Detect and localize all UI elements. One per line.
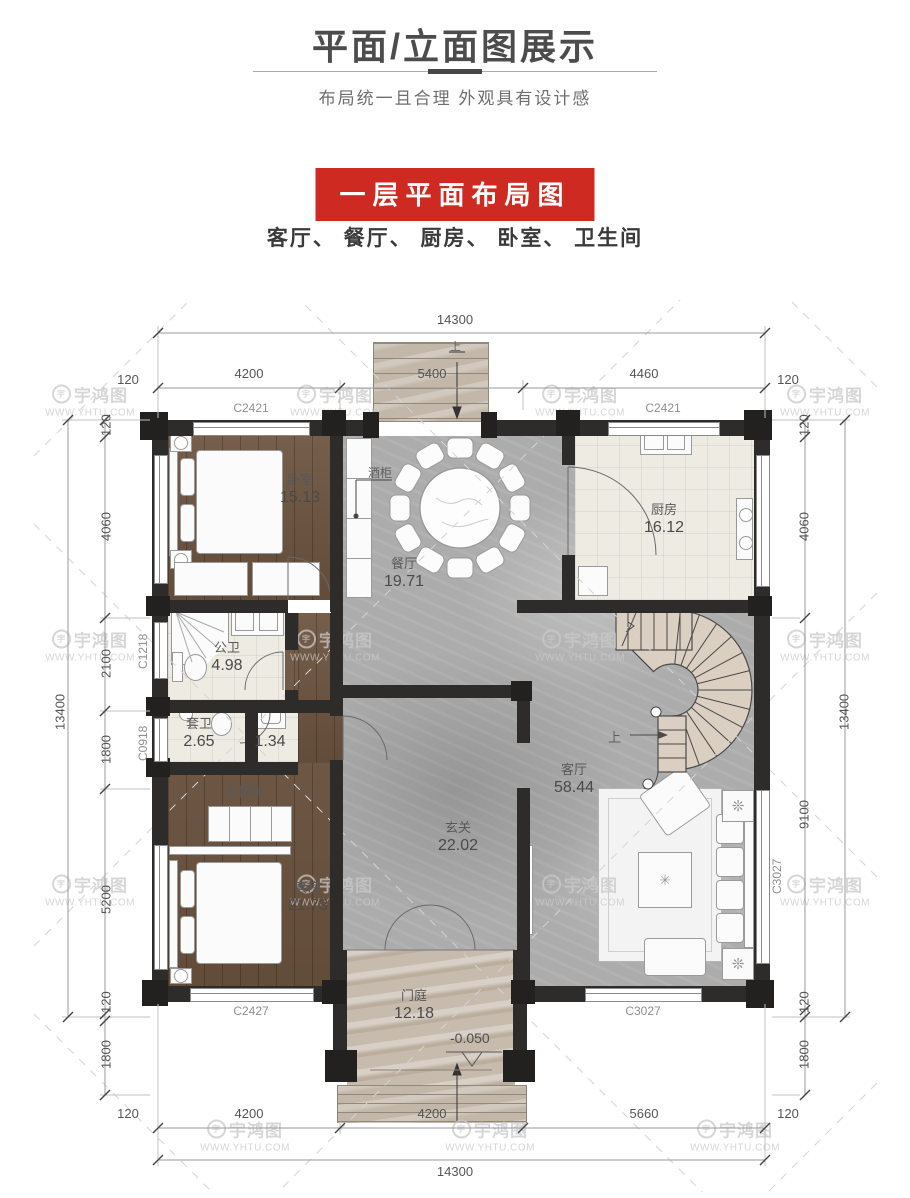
section-banner: 一层平面布局图 (315, 168, 594, 221)
dim-bottom-seg: 4200 (394, 1106, 470, 1121)
dim-left-seg: 5200 (98, 870, 114, 930)
kitchen-cabinet (578, 566, 608, 596)
sofa-cushion (716, 847, 744, 877)
room-label-foyer: 玄关22.02 (430, 820, 486, 856)
interior-wall (517, 600, 754, 613)
dim-top-seg: 5400 (394, 366, 470, 381)
watermark-logo-icon: 宇 (697, 1120, 716, 1139)
window-label: C3027 (770, 840, 784, 912)
column (748, 596, 772, 616)
stairs-up-note: 上 (608, 727, 621, 746)
interior-wall (517, 698, 530, 743)
room-list: 客厅、 餐厅、 厨房、 卧室、 卫生间 (0, 222, 910, 252)
watermark: 宇宇鸿图WWW.YHTU.COM (780, 382, 870, 419)
window (190, 988, 314, 1002)
sink-basin (259, 611, 278, 631)
column (511, 980, 535, 1004)
interior-wall (152, 600, 288, 613)
dim-right-overall: 13400 (836, 682, 852, 742)
watermark-logo-icon: 宇 (52, 630, 71, 649)
plant-icon: ❊ (722, 948, 754, 980)
dim-right-seg: 120 (796, 972, 812, 1032)
dim-right-seg: 120 (796, 395, 812, 455)
column (744, 410, 772, 440)
pillow (180, 504, 195, 542)
divider-accent (428, 69, 482, 74)
column (481, 412, 497, 438)
watermark: 宇宇鸿图WWW.YHTU.COM (200, 1117, 290, 1154)
interior-wall (168, 700, 343, 713)
pillow (180, 916, 195, 954)
interior-wall (330, 685, 527, 698)
back-steps (373, 342, 489, 422)
interior-wall (168, 762, 298, 775)
interior-wall (285, 613, 298, 650)
window (193, 422, 310, 436)
dim-left-seg: 4060 (98, 497, 114, 557)
burner-icon (739, 536, 753, 550)
bed-mattress (196, 450, 283, 554)
window-label: C0918 (136, 712, 150, 774)
dim-bottom-end: 120 (768, 1106, 808, 1121)
dim-left-seg: 2100 (98, 634, 114, 694)
toilet-tank (172, 652, 183, 682)
window (154, 845, 168, 970)
dim-left-seg: 1800 (98, 720, 114, 780)
dim-top-overall: 14300 (413, 312, 497, 327)
dim-right-seg: 4060 (796, 497, 812, 557)
level-note: -0.050 (450, 1030, 490, 1046)
watermark: 宇宇鸿图WWW.YHTU.COM (690, 1117, 780, 1154)
dim-top-seg: 4200 (211, 366, 287, 381)
dim-top-seg: 4460 (606, 366, 682, 381)
dim-top-end: 120 (108, 372, 148, 387)
sofa-back (744, 812, 754, 948)
dim-bottom-overall: 14300 (413, 1164, 497, 1179)
porch-column (325, 1050, 357, 1082)
dim-right-seg: 1800 (796, 1025, 812, 1085)
interior-wall (562, 436, 575, 465)
room-label-cloakroom: 衣帽间 (212, 784, 276, 800)
bed-mattress (196, 862, 282, 964)
dim-bottom-end: 120 (108, 1106, 148, 1121)
window (756, 455, 770, 587)
window (154, 622, 168, 679)
watermark-logo-icon: 宇 (52, 875, 71, 894)
bed-headboard (169, 860, 178, 968)
column (140, 412, 168, 440)
back-up-note: 上 (450, 338, 461, 354)
coffee-table: ✳ (638, 852, 692, 908)
column (146, 596, 170, 616)
wine-cabinet (346, 438, 372, 598)
bed-headboard (169, 448, 178, 556)
watermark-logo-icon: 宇 (787, 630, 806, 649)
dim-bottom-seg: 4200 (211, 1106, 287, 1121)
dim-left-seg: 120 (98, 395, 114, 455)
room-label-bedroom: 卧室15.13 (272, 472, 328, 508)
cloakroom-shelf (169, 846, 291, 855)
column (142, 980, 168, 1006)
dim-top-end: 120 (768, 372, 808, 387)
window (585, 988, 702, 1002)
plant-icon: ❊ (722, 790, 754, 822)
watermark: 宇宇鸿图WWW.YHTU.COM (535, 382, 625, 419)
room-label-suite-bath: 套卫2.65 (174, 716, 224, 752)
window-label: C2421 (212, 401, 290, 415)
pillow (180, 870, 195, 908)
watermark: 宇宇鸿图WWW.YHTU.COM (45, 872, 135, 909)
porch-column (503, 1050, 535, 1082)
column (746, 980, 774, 1008)
window (154, 455, 168, 584)
sofa-cushion (716, 913, 744, 943)
watermark-logo-icon: 宇 (297, 385, 316, 404)
sofa-two-seat (644, 938, 706, 976)
interior-wall (330, 613, 343, 716)
wardrobe (208, 806, 292, 842)
column (322, 410, 346, 436)
sofa-cushion (716, 880, 744, 910)
window (608, 422, 720, 436)
dim-bottom-seg: 5660 (606, 1106, 682, 1121)
watermark: 宇宇鸿图WWW.YHTU.COM (45, 382, 135, 419)
interior-wall (331, 600, 343, 613)
bedroom-cabinet (252, 562, 320, 596)
watermark-logo-icon: 宇 (787, 875, 806, 894)
room-label-living: 客厅58.44 (546, 762, 602, 798)
dim-left-seg: 1800 (98, 1025, 114, 1085)
room-label-kitchen: 厨房16.12 (636, 502, 692, 538)
window-label: C2427 (212, 1004, 290, 1018)
window-label: C3027 (604, 1004, 682, 1018)
lamp-icon (174, 969, 188, 983)
room-label-public-bath: 公卫4.98 (202, 640, 252, 676)
burner-icon (739, 508, 753, 522)
room-label-porch: 门庭12.18 (386, 988, 442, 1024)
dim-left-seg: 120 (98, 972, 114, 1032)
bedroom-bench (174, 562, 248, 596)
window-label: C1218 (136, 620, 150, 682)
watermark: 宇宇鸿图WWW.YHTU.COM (780, 872, 870, 909)
dim-right-seg: 9100 (796, 785, 812, 845)
room-label-suite: 套房21.73 (280, 880, 336, 916)
window-label: C2421 (624, 401, 702, 415)
room-label-small-bath: 1.34 (250, 732, 290, 752)
watermark: 宇宇鸿图WWW.YHTU.COM (45, 627, 135, 664)
window (154, 718, 168, 762)
sink-basin (235, 611, 254, 631)
column (363, 412, 379, 438)
floor-plan-page: 平面/立面图展示 布局统一且合理 外观具有设计感 一层平面布局图 客厅、 餐厅、… (0, 0, 910, 1198)
watermark-logo-icon: 宇 (542, 385, 561, 404)
interior-wall (330, 436, 343, 612)
page-subtitle: 布局统一且合理 外观具有设计感 (0, 84, 910, 109)
dim-left-overall: 13400 (52, 682, 68, 742)
watermark-logo-icon: 宇 (52, 385, 71, 404)
window (756, 790, 770, 964)
column (322, 980, 346, 1004)
watermark: 宇宇鸿图WWW.YHTU.COM (780, 627, 870, 664)
room-label-dining: 餐厅19.71 (376, 556, 432, 592)
pillow (180, 458, 195, 496)
column (511, 681, 532, 701)
page-title: 平面/立面图展示 (0, 18, 910, 70)
wine-cabinet-note: 酒柜 (368, 464, 392, 481)
lamp-icon (174, 436, 188, 450)
column (556, 410, 580, 436)
watermark-logo-icon: 宇 (207, 1120, 226, 1139)
